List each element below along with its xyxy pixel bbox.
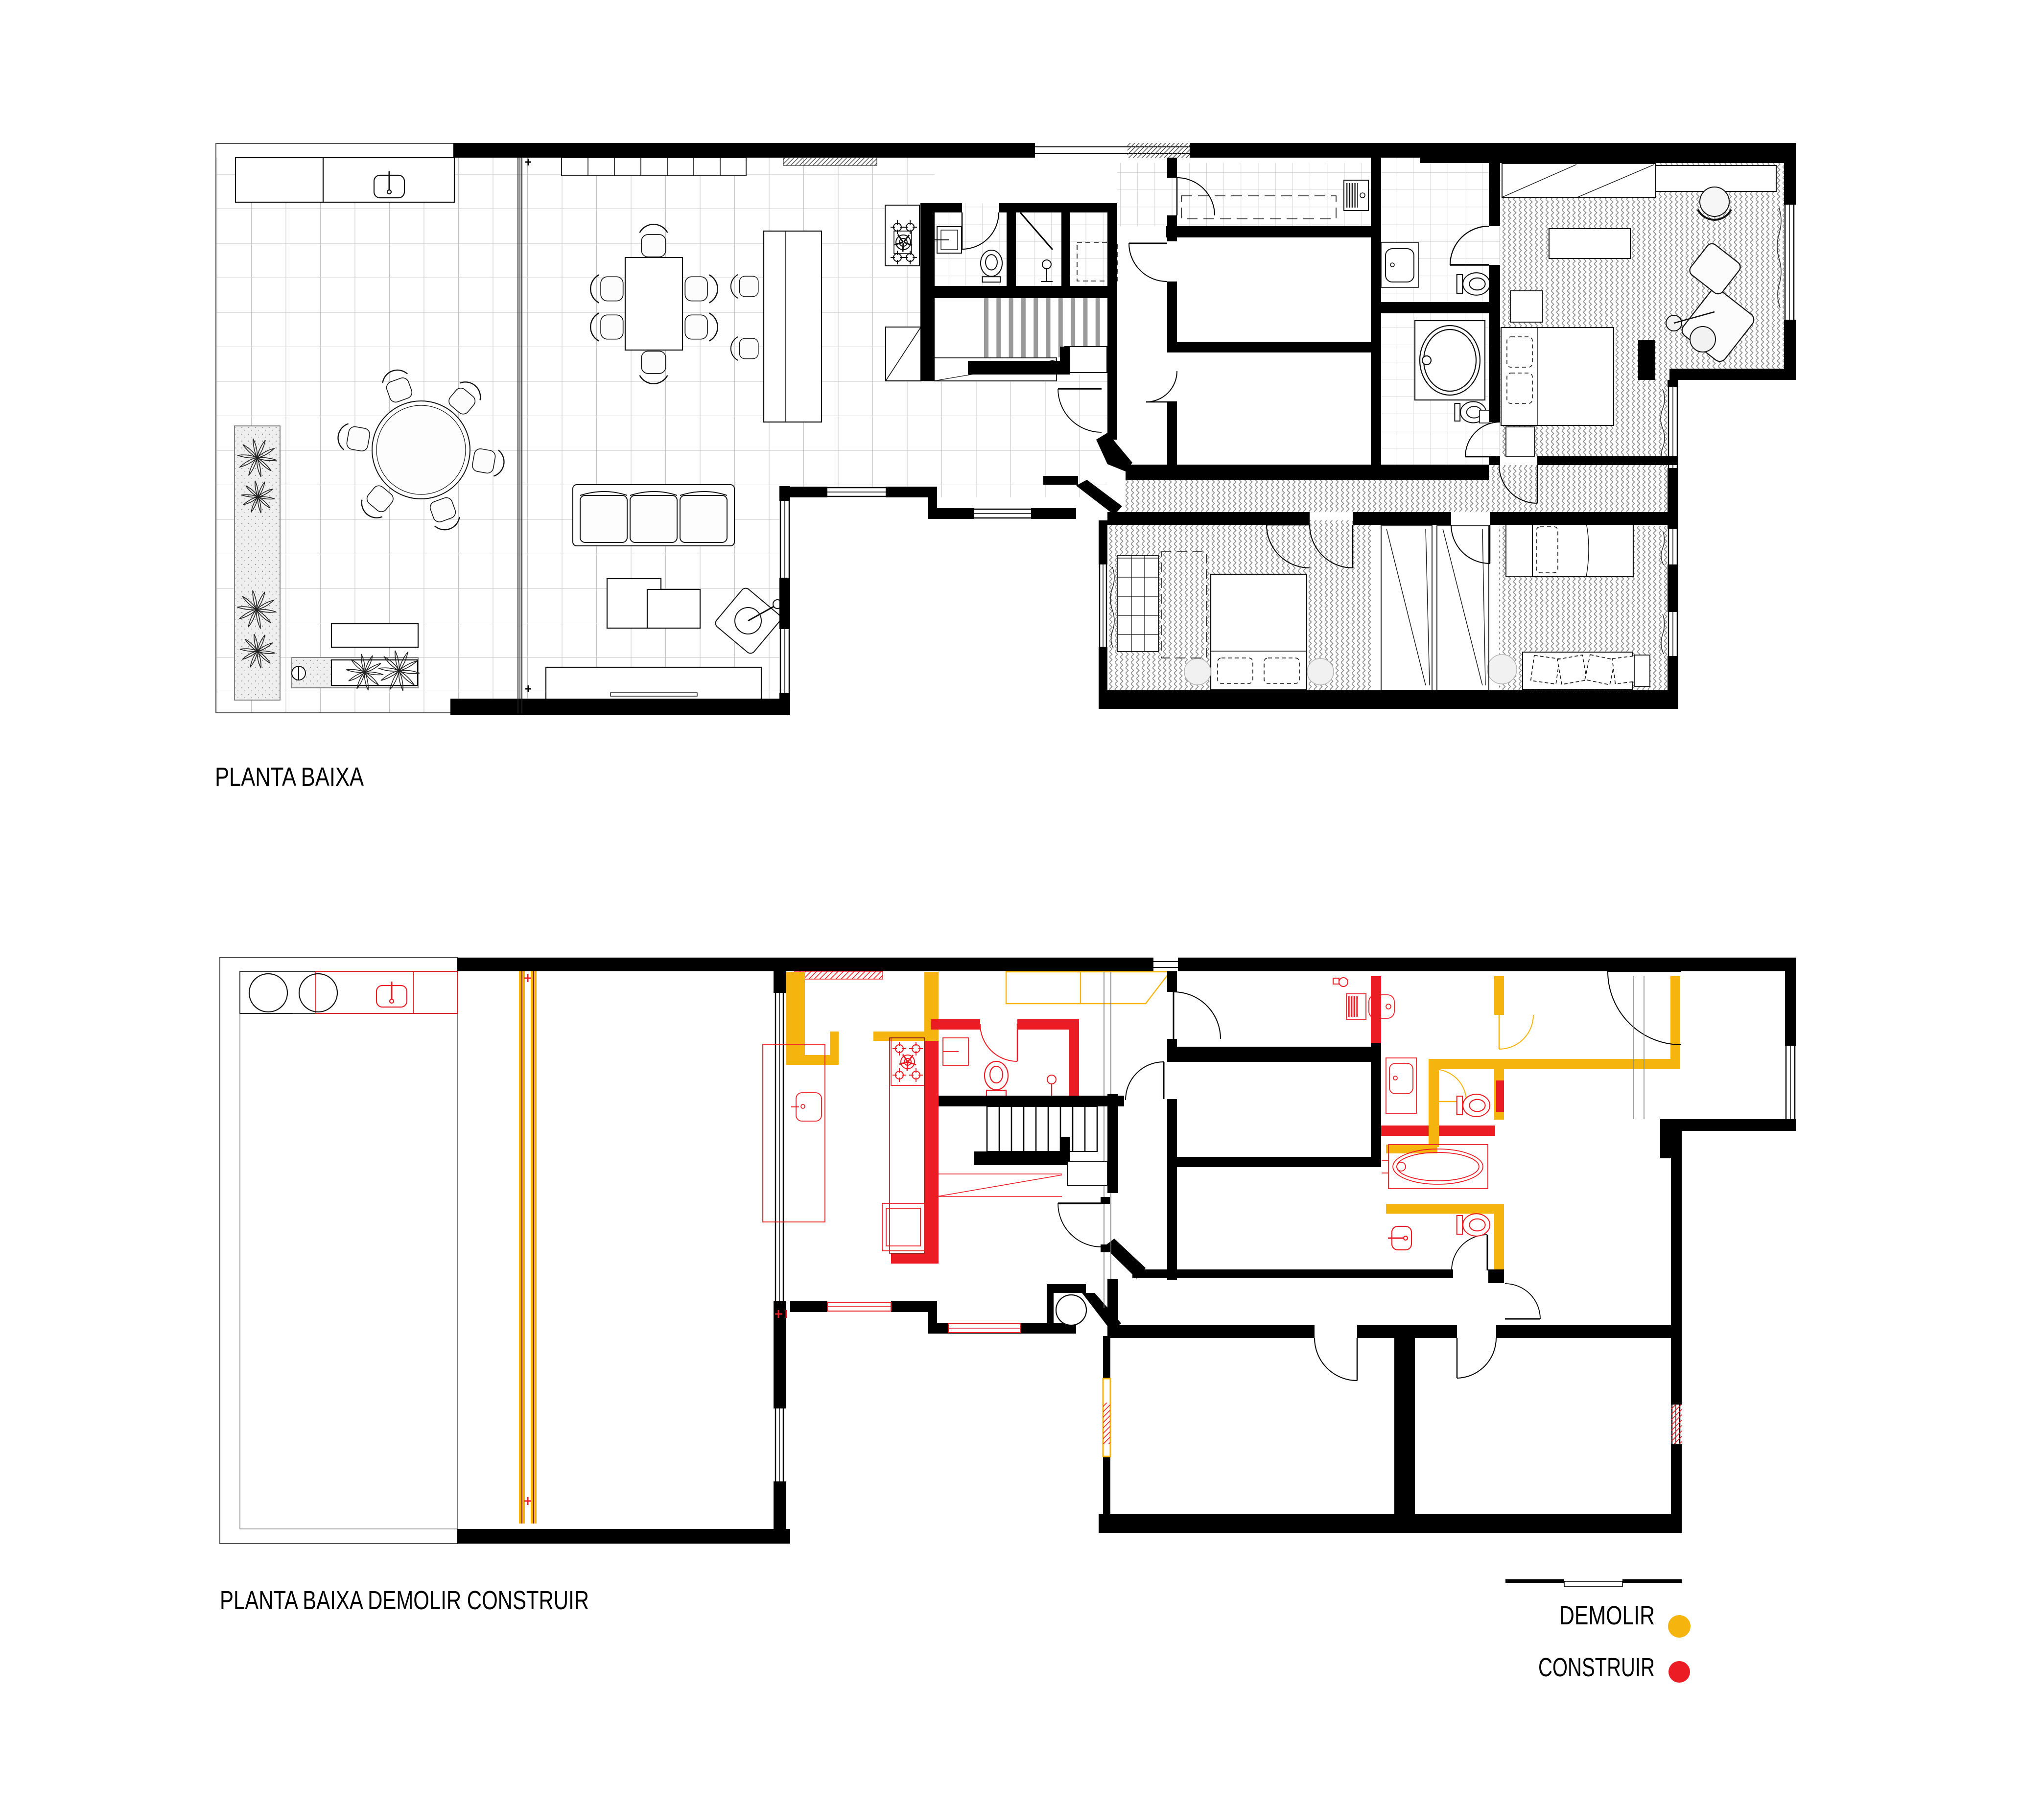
svg-text:PLANTA BAIXA DEMOLIR CONSTRUIR: PLANTA BAIXA DEMOLIR CONSTRUIR: [220, 1586, 589, 1615]
svg-text:DEMOLIR: DEMOLIR: [1559, 1601, 1655, 1630]
svg-text:CONSTRUIR: CONSTRUIR: [1538, 1653, 1655, 1682]
svg-text:PLANTA BAIXA: PLANTA BAIXA: [215, 762, 364, 792]
